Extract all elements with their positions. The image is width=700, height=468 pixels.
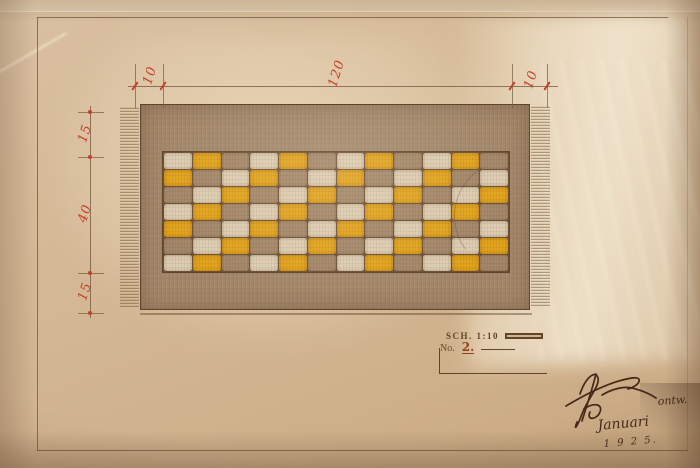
dim-tick-mark-red [88, 110, 92, 114]
title-block-line-horizontal [439, 373, 547, 374]
rug-cell-white [394, 221, 422, 237]
rug-cell-brown [250, 187, 278, 203]
rug-cell-white [337, 204, 365, 220]
rug-cell-yellow [193, 255, 221, 271]
rug-cell-white [337, 153, 365, 169]
rug-cell-brown [394, 255, 422, 271]
dim-tick-mark-red [88, 155, 92, 159]
rug-cell-brown [308, 153, 336, 169]
rug-cell-white [164, 153, 192, 169]
rug-cell-brown [250, 238, 278, 254]
rug-cell-yellow [308, 187, 336, 203]
rug-cell-brown [394, 204, 422, 220]
rug-cell-yellow [164, 221, 192, 237]
rug-cell-yellow [164, 170, 192, 186]
rug-cell-white [279, 187, 307, 203]
rug-cell-yellow [279, 204, 307, 220]
dim-line-top [128, 86, 558, 87]
rug-cell-brown [337, 238, 365, 254]
rug-cell-yellow [337, 221, 365, 237]
rug-cell-white [423, 255, 451, 271]
rug-cell-yellow [222, 187, 250, 203]
rug-cell-white [193, 187, 221, 203]
rug-cell-brown [193, 170, 221, 186]
rug-bottom-edge-line [140, 313, 532, 315]
rug-fringe-left [120, 107, 139, 307]
rug-cell-white [250, 153, 278, 169]
photographed-rug-design-drawing: 10 120 10 15 40 15 SCH. 1:10 No. 2. ontw… [0, 0, 700, 468]
rug-cell-brown [365, 221, 393, 237]
rug-cell-yellow [193, 153, 221, 169]
rug-cell-yellow [279, 255, 307, 271]
number-dash-line [481, 349, 515, 350]
title-block-line-vertical [439, 348, 440, 374]
rug-cell-brown [279, 170, 307, 186]
rug-cell-brown [193, 221, 221, 237]
rug-cell-white [394, 170, 422, 186]
rug-cell-brown [222, 255, 250, 271]
number-prefix: No. [440, 343, 455, 354]
rug-cell-yellow [365, 153, 393, 169]
rug-cell-yellow [193, 204, 221, 220]
rug-cell-brown [164, 187, 192, 203]
rug-cell-brown [279, 221, 307, 237]
rug-cell-white [250, 255, 278, 271]
rug-cell-white [279, 238, 307, 254]
rug-cell-brown [337, 187, 365, 203]
rug-cell-yellow [365, 255, 393, 271]
rug-cell-yellow [337, 170, 365, 186]
dim-tick-mark-red [88, 271, 92, 275]
dim-tick-mark-red [88, 311, 92, 315]
rug-cell-white [423, 204, 451, 220]
number-row: No. 2. [440, 342, 515, 354]
paper-top-edge [0, 0, 700, 12]
rug-cell-brown [308, 255, 336, 271]
rug-cell-white [365, 187, 393, 203]
rug-cell-yellow [452, 153, 480, 169]
photo-corner-shadow [640, 383, 700, 468]
rug-cell-white [365, 238, 393, 254]
scale-bar [505, 333, 543, 339]
rug-cell-yellow [222, 238, 250, 254]
rug-cell-yellow [279, 153, 307, 169]
rug-cell-brown [222, 204, 250, 220]
rug-cell-white [193, 238, 221, 254]
rug-cell-yellow [250, 221, 278, 237]
rug-cell-yellow [250, 170, 278, 186]
rug-cell-white [423, 153, 451, 169]
rug-cell-brown [365, 170, 393, 186]
rug-cell-white [164, 204, 192, 220]
rug-cell-white [250, 204, 278, 220]
frame-line-top [37, 17, 668, 18]
rug-cell-white [164, 255, 192, 271]
rug-cell-white [222, 170, 250, 186]
rug-cell-yellow [423, 170, 451, 186]
rug-cell-white [308, 170, 336, 186]
rug-cell-brown [308, 204, 336, 220]
rug-cell-white [337, 255, 365, 271]
rug-cell-brown [394, 153, 422, 169]
rug-cell-brown [423, 238, 451, 254]
number-value: 2. [462, 342, 475, 354]
rug-cell-yellow [394, 238, 422, 254]
rug-cell-yellow [365, 204, 393, 220]
rug-cell-brown [222, 153, 250, 169]
rug-cell-white [222, 221, 250, 237]
frame-line-left [37, 17, 38, 451]
rug-cell-yellow [308, 238, 336, 254]
rug-cell-yellow [423, 221, 451, 237]
rug-cell-white [308, 221, 336, 237]
rug-cell-brown [164, 238, 192, 254]
scale-row: SCH. 1:10 [446, 331, 543, 341]
rug-cell-yellow [394, 187, 422, 203]
rug-cell-brown [423, 187, 451, 203]
